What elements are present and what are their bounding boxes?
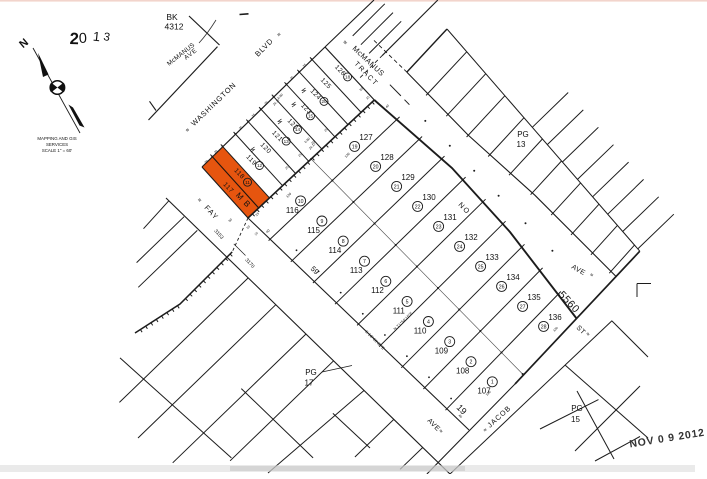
svg-text:SCALE 1" = 60': SCALE 1" = 60' (42, 148, 73, 153)
svg-text:4312: 4312 (165, 22, 184, 32)
svg-text:128: 128 (380, 153, 394, 162)
svg-text:109: 109 (435, 347, 449, 356)
svg-text:20: 20 (373, 164, 379, 170)
svg-text:127: 127 (359, 133, 373, 142)
svg-text:13: 13 (284, 139, 290, 144)
svg-text:25: 25 (478, 264, 484, 270)
svg-text:26: 26 (499, 284, 505, 290)
svg-text:15: 15 (571, 415, 580, 424)
svg-text:21: 21 (394, 184, 400, 190)
svg-text:17: 17 (305, 379, 314, 388)
svg-text:111: 111 (393, 306, 406, 315)
svg-text:22: 22 (415, 204, 421, 210)
svg-text:MAPPING AND GIS: MAPPING AND GIS (37, 136, 76, 141)
svg-text:3: 3 (448, 340, 451, 346)
svg-text:15: 15 (308, 114, 314, 119)
svg-text:PG: PG (517, 130, 529, 139)
svg-text:11: 11 (245, 180, 250, 185)
svg-text:23: 23 (436, 224, 442, 230)
svg-text:129: 129 (401, 173, 415, 182)
svg-text:116: 116 (286, 206, 299, 215)
svg-text:0: 0 (79, 31, 88, 47)
svg-text:136: 136 (548, 313, 562, 322)
svg-text:4: 4 (427, 319, 430, 325)
svg-text:PG: PG (571, 404, 583, 413)
svg-text:BK: BK (166, 12, 178, 22)
svg-text:5: 5 (406, 299, 409, 305)
svg-text:135: 135 (527, 293, 541, 302)
svg-text:PG: PG (305, 368, 317, 377)
svg-text:110: 110 (414, 326, 427, 335)
svg-text:6: 6 (384, 279, 387, 285)
svg-text:7: 7 (363, 259, 366, 265)
svg-text:13: 13 (517, 140, 526, 149)
svg-text:12: 12 (257, 163, 263, 168)
svg-text:27: 27 (520, 304, 526, 310)
svg-text:131: 131 (443, 213, 457, 222)
svg-text:28: 28 (541, 324, 547, 330)
svg-text:108: 108 (456, 367, 470, 376)
svg-text:20: 20 (321, 99, 327, 104)
svg-text:9: 9 (320, 219, 323, 225)
svg-text:SERVICES: SERVICES (46, 142, 68, 147)
svg-text:18: 18 (345, 75, 351, 80)
svg-text:113: 113 (350, 266, 363, 275)
svg-text:8: 8 (342, 239, 345, 245)
svg-text:10: 10 (298, 199, 304, 205)
svg-text:133: 133 (485, 253, 499, 262)
svg-text:19: 19 (352, 144, 358, 150)
svg-text:114: 114 (329, 246, 342, 255)
svg-text:24: 24 (457, 244, 463, 250)
svg-text:1: 1 (491, 380, 494, 386)
svg-text:130: 130 (422, 193, 436, 202)
svg-text:132: 132 (464, 233, 478, 242)
svg-text:134: 134 (506, 273, 520, 282)
svg-text:2: 2 (470, 360, 473, 366)
svg-text:115: 115 (307, 226, 320, 235)
svg-text:112: 112 (371, 286, 384, 295)
svg-text:14: 14 (295, 127, 301, 132)
